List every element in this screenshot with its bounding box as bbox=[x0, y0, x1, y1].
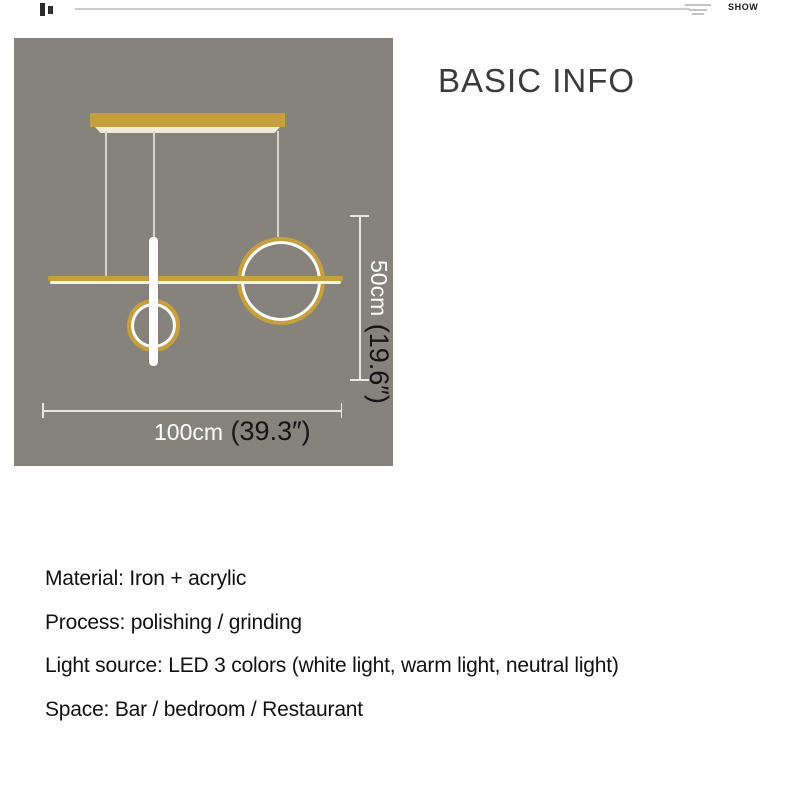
spec-material: Material: Iron + acrylic bbox=[45, 567, 619, 589]
height-dimension-label: 50cm (19.6″) bbox=[363, 260, 394, 404]
width-cm-text: 100cm bbox=[154, 419, 223, 445]
spec-space: Space: Bar / bedroom / Restaurant bbox=[45, 698, 619, 720]
height-cm-text: 50cm bbox=[366, 260, 392, 316]
lamp-horizontal-led-strip bbox=[50, 281, 341, 284]
page-title: BASIC INFO bbox=[438, 62, 635, 100]
spec-light-source: Light source: LED 3 colors (white light,… bbox=[45, 654, 619, 676]
toolbar: SHOW bbox=[0, 0, 800, 22]
divider-line bbox=[75, 8, 690, 10]
width-dimension-label: 100cm (39.3″) bbox=[154, 416, 311, 447]
show-button[interactable]: SHOW bbox=[728, 2, 758, 12]
lamp-ceiling-canopy bbox=[90, 113, 285, 127]
height-inches-text: (19.6″) bbox=[364, 316, 394, 404]
width-dimension-cap-left bbox=[42, 403, 44, 418]
height-dimension-cap-top bbox=[350, 215, 369, 217]
spec-process: Process: polishing / grinding bbox=[45, 611, 619, 633]
lamp-wire-right bbox=[277, 131, 279, 237]
height-dimension-line bbox=[359, 216, 361, 379]
spec-list: Material: Iron + acrylic Process: polish… bbox=[45, 567, 619, 741]
width-dimension-cap-right bbox=[341, 403, 343, 418]
width-dimension-line bbox=[42, 410, 342, 412]
pause-bars-icon-small[interactable] bbox=[48, 6, 53, 14]
lamp-vertical-tube-light bbox=[149, 237, 158, 366]
lamp-wire-left bbox=[105, 131, 107, 277]
lamp-wire-middle bbox=[153, 131, 155, 237]
lamp-canopy-bevel bbox=[95, 127, 280, 133]
product-diagram-panel: 50cm (19.6″) 100cm (39.3″) bbox=[14, 38, 393, 466]
width-inches-text: (39.3″) bbox=[223, 416, 311, 446]
pause-bars-icon[interactable] bbox=[40, 3, 45, 16]
